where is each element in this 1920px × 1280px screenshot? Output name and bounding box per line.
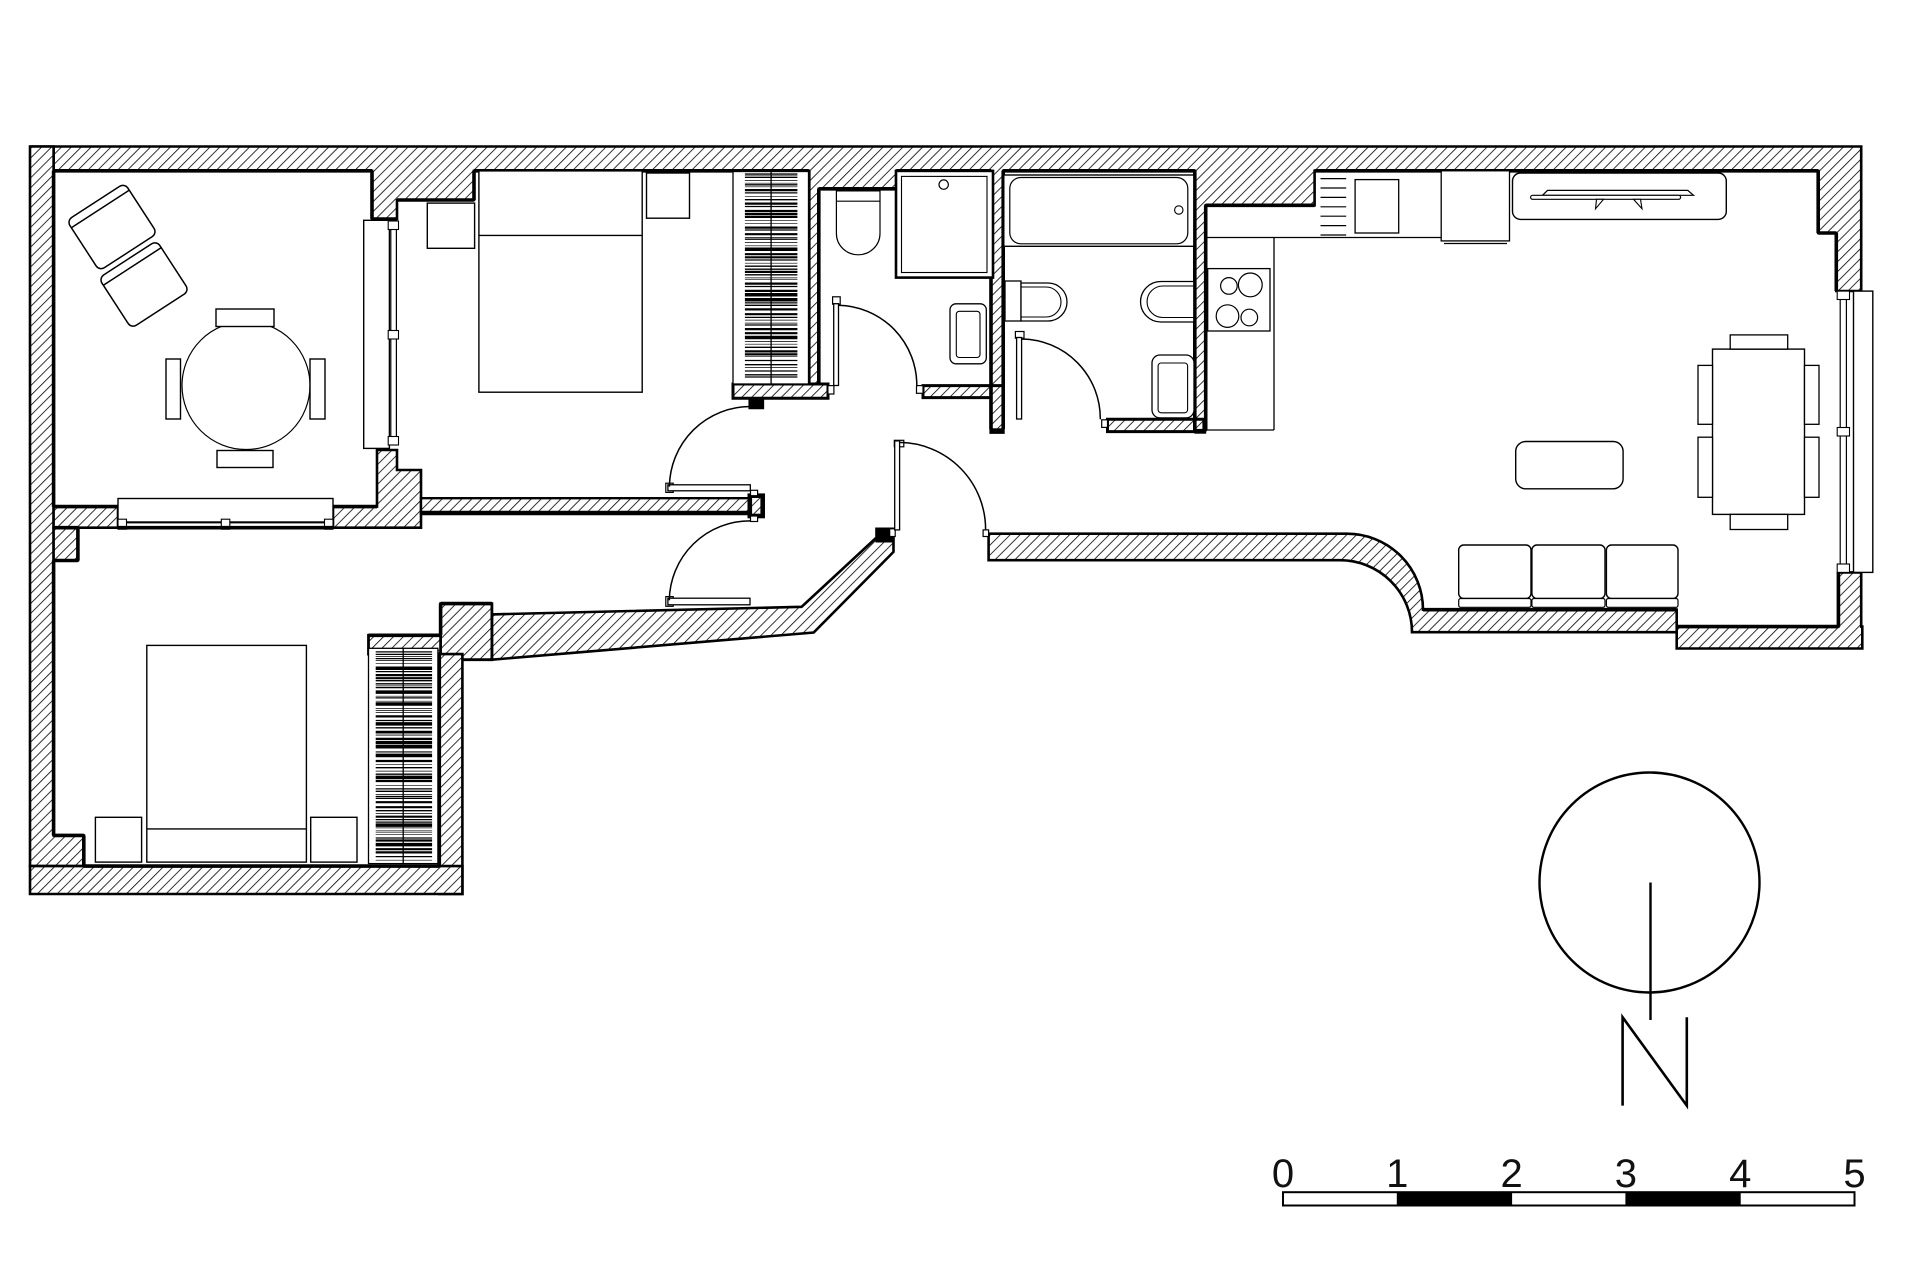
svg-text:3: 3 xyxy=(1615,1152,1637,1196)
svg-text:2: 2 xyxy=(1500,1152,1522,1196)
svg-text:0: 0 xyxy=(1272,1152,1294,1196)
svg-text:1: 1 xyxy=(1386,1152,1408,1196)
svg-text:4: 4 xyxy=(1729,1152,1751,1196)
svg-text:5: 5 xyxy=(1843,1152,1865,1196)
